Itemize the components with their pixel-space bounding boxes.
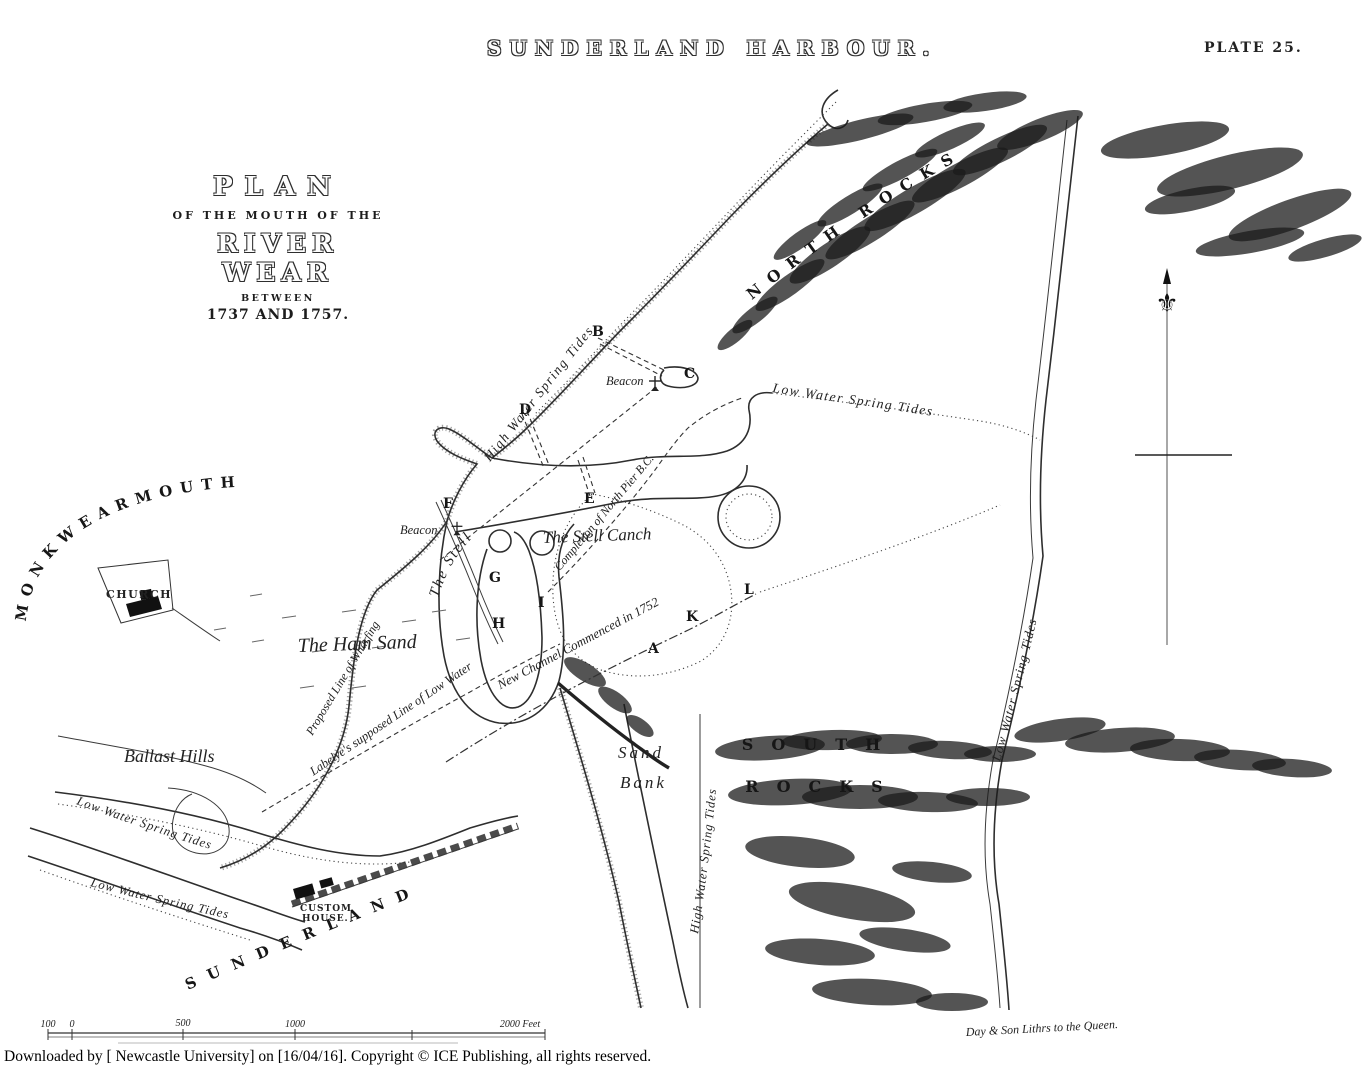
letter-b: B [592, 324, 604, 340]
reference-letters: B C D E F G H I A K L [443, 324, 754, 657]
label-low-water-west-1: Low Water Spring Tides [74, 793, 214, 852]
letter-i: I [538, 595, 545, 611]
harbour-map: ⚜ MONKWEARMOUTH NORTH ROCKS SUNDERLAND H… [0, 0, 1367, 1046]
label-south-rocks-2: ROCKS [745, 777, 900, 796]
label-beacon-left: Beacon [400, 523, 437, 537]
letter-h: H [492, 616, 505, 632]
svg-text:High Water Spring Tides: High Water Spring Tides [480, 323, 597, 465]
label-low-water-top: Low Water Spring Tides [771, 380, 935, 419]
label-church: CHURCH [106, 588, 172, 601]
label-sand-bank-1: Sand [618, 743, 664, 762]
svg-text:NORTH ROCKS: NORTH ROCKS [743, 144, 966, 304]
svg-text:High Water Spring Tides: High Water Spring Tides [687, 788, 719, 936]
label-ballast-hills: Ballast Hills [124, 746, 215, 766]
scale-label-500: 500 [176, 1018, 191, 1029]
label-high-water-sandbank: High Water Spring Tides [687, 788, 719, 936]
svg-text:Low Water Spring Tides: Low Water Spring Tides [88, 875, 230, 921]
beacon-mark-right [649, 376, 661, 391]
label-sand-bank-2: Bank [620, 773, 667, 792]
label-north-rocks: NORTH ROCKS [743, 144, 966, 304]
label-custom-house-1: CUSTOM [300, 904, 352, 914]
fleur-de-lis-icon: ⚜ [1155, 289, 1178, 318]
letter-k: K [686, 609, 699, 625]
scale-label-1000: 1000 [285, 1019, 305, 1030]
svg-text:Low Water Spring Tides: Low Water Spring Tides [771, 380, 935, 419]
label-low-water-west-2: Low Water Spring Tides [88, 875, 230, 921]
scale-label-2000ft: 2000 Feet [500, 1019, 540, 1030]
scale-label-100: 100 [41, 1019, 56, 1030]
letter-a: A [647, 641, 660, 657]
letter-l: L [744, 582, 754, 598]
north-arrow-icon [1163, 268, 1171, 284]
south-rocks-texture [714, 713, 1332, 1011]
label-south-rocks-1: SOUTH [742, 735, 898, 754]
letter-e: E [584, 491, 595, 507]
letter-c: C [684, 366, 695, 382]
label-custom-house-2: HOUSE. [302, 914, 349, 924]
letter-f: F [443, 496, 453, 512]
scanned-map-page: { "header": { "title": "SUNDERLAND HARBO… [0, 0, 1367, 1075]
svg-text:Low Water Spring Tides: Low Water Spring Tides [74, 793, 214, 852]
download-copyright-notice: Downloaded by [ Newcastle University] on… [4, 1048, 1364, 1066]
lithographer-credit: Day & Son Lithrs to the Queen. [964, 1017, 1118, 1039]
label-beacon-right: Beacon [606, 374, 643, 388]
compass-rose: ⚜ [1135, 268, 1232, 645]
letter-d: D [519, 402, 531, 418]
scale-label-0: 0 [70, 1019, 75, 1030]
label-labelyes-line: Labelye's supposed Line of Low Water [306, 659, 474, 779]
letter-g: G [489, 570, 501, 586]
label-high-water-north: High Water Spring Tides [480, 323, 597, 465]
scale-bar: 100 0 500 1000 2000 Feet [41, 1018, 546, 1040]
